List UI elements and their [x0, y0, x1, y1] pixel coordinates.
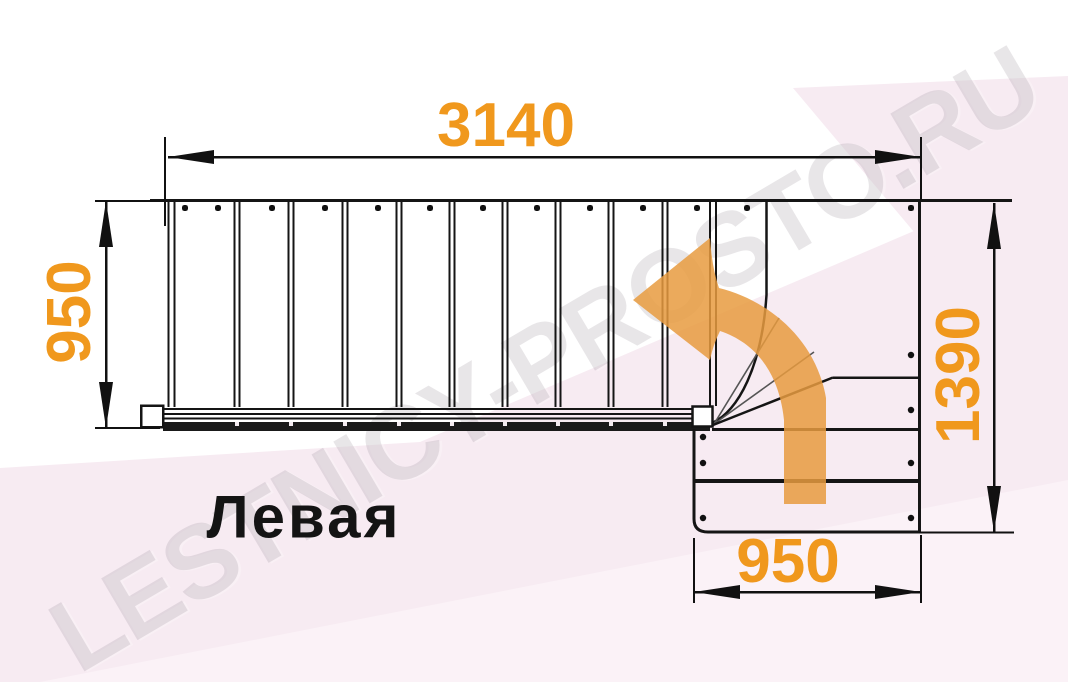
tread-dividers — [169, 202, 717, 407]
dimension-top-label: 3140 — [437, 95, 575, 157]
arrowhead-left-icon — [694, 585, 740, 599]
flight-top-edge — [150, 199, 1012, 202]
staircase-plan-diagram: LESTNICY-PROSTO.RU — [0, 0, 1068, 682]
arrowhead-up-icon — [99, 201, 113, 247]
inner-newel-post — [693, 407, 713, 427]
arrowhead-down-icon — [987, 486, 1001, 532]
orientation-label: Левая — [207, 483, 402, 552]
tread-screw-dots — [182, 205, 914, 211]
arrowhead-up-icon — [987, 203, 1001, 249]
dimension-left-label: 950 — [39, 260, 101, 363]
stringer-band — [163, 409, 692, 419]
arrowhead-left-icon — [168, 150, 214, 164]
start-post — [141, 406, 163, 428]
dimension-bottom-label: 950 — [736, 531, 839, 593]
arrowhead-right-icon — [875, 150, 921, 164]
arrowhead-right-icon — [875, 585, 921, 599]
stringer-dark-band — [163, 422, 710, 431]
arrowhead-down-icon — [99, 382, 113, 428]
dimension-right-label: 1390 — [928, 306, 990, 444]
upper-flight — [141, 199, 1012, 431]
